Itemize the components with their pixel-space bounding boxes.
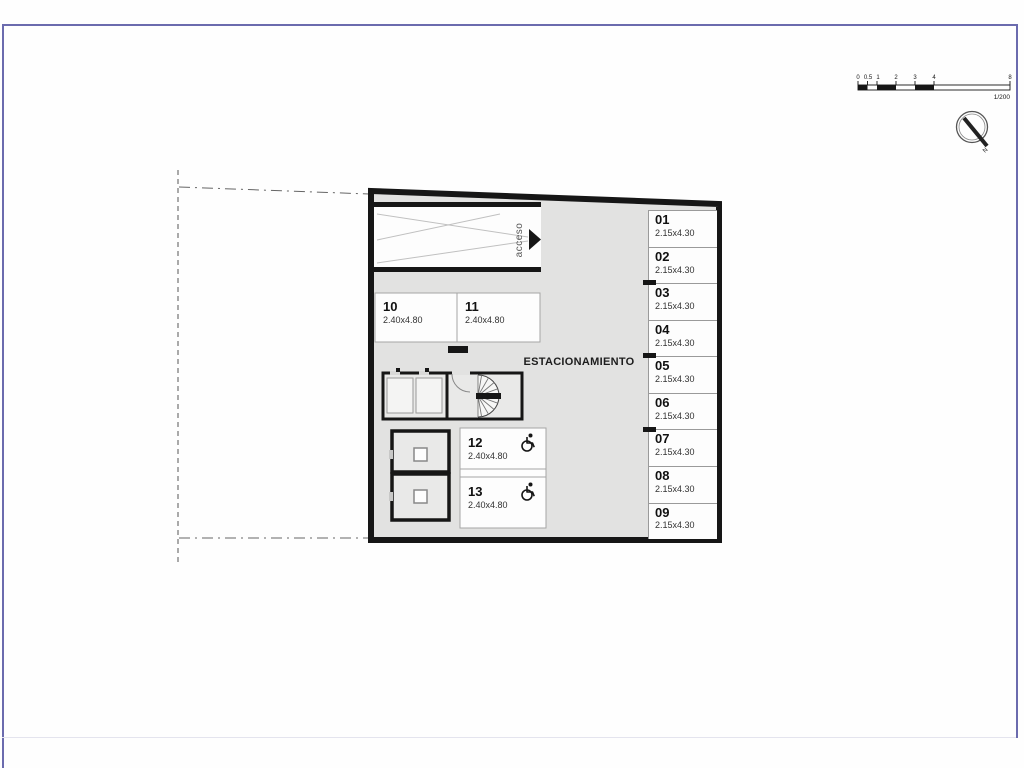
stall-04: 04 2.15x4.30: [649, 321, 717, 358]
stall-dimensions: 2.40x4.80: [383, 315, 456, 326]
stall-09: 09 2.15x4.30: [649, 504, 717, 540]
stall-number: 06: [655, 396, 717, 411]
stall-dimensions: 2.15x4.30: [655, 447, 717, 458]
scale-ratio-label: 1/200: [994, 94, 1011, 101]
stall-dimensions: 2.15x4.30: [655, 301, 717, 312]
ramp-label: acceso: [514, 218, 526, 262]
stall-dimensions: 2.40x4.80: [468, 500, 521, 511]
stall-01: 01 2.15x4.30: [649, 211, 717, 248]
column-tick: [643, 353, 656, 358]
stall-number: 13: [468, 485, 521, 500]
stall-06: 06 2.15x4.30: [649, 394, 717, 431]
stall-02: 02 2.15x4.30: [649, 248, 717, 285]
stair-core: [383, 368, 522, 419]
stall-number: 04: [655, 323, 717, 338]
property-boundary-lines: [178, 170, 369, 565]
column-tick: [643, 280, 656, 285]
north-label: N: [982, 147, 989, 154]
stall-13: 13 2.40x4.80: [461, 481, 521, 511]
stall-number: 11: [465, 300, 538, 315]
area-title: ESTACIONAMIENTO: [523, 356, 635, 368]
stall-number: 02: [655, 250, 717, 265]
stall-number: 01: [655, 213, 717, 228]
stall-08: 08 2.15x4.30: [649, 467, 717, 504]
scale-tick-label: 4: [932, 75, 936, 81]
floor-plan-page: 0 0.5 1 2 3 4 8 1/200 N 01 2.15x4.30 02 …: [0, 0, 1024, 768]
stall-dimensions: 2.15x4.30: [655, 520, 717, 531]
stall-05: 05 2.15x4.30: [649, 357, 717, 394]
stall-dimensions: 2.15x4.30: [655, 338, 717, 349]
perimeter-stall-column: 01 2.15x4.30 02 2.15x4.30 03 2.15x4.30 0…: [648, 210, 717, 539]
stall-number: 05: [655, 359, 717, 374]
stall-dimensions: 2.15x4.30: [655, 228, 717, 239]
stall-10: 10 2.40x4.80: [376, 296, 456, 326]
stall-number: 07: [655, 432, 717, 447]
scale-tick-label: 0: [856, 75, 860, 81]
stall-dimensions: 2.40x4.80: [465, 315, 538, 326]
scale-tick-label: 8: [1008, 75, 1012, 81]
plan-drawing: 0 0.5 1 2 3 4 8 1/200 N: [0, 0, 1024, 768]
storage-rooms: [389, 431, 449, 520]
column-tick: [643, 427, 656, 432]
scale-tick-label: 3: [913, 75, 917, 81]
scale-tick-label: 0.5: [864, 75, 873, 81]
stall-number: 09: [655, 506, 717, 521]
stall-number: 03: [655, 286, 717, 301]
stall-dimensions: 2.15x4.30: [655, 374, 717, 385]
stall-dimensions: 2.15x4.30: [655, 265, 717, 276]
stall-dimensions: 2.15x4.30: [655, 411, 717, 422]
scale-tick-label: 1: [876, 75, 880, 81]
stall-12: 12 2.40x4.80: [461, 432, 521, 462]
stall-dimensions: 2.40x4.80: [468, 451, 521, 462]
north-indicator: N: [957, 112, 990, 155]
stall-03: 03 2.15x4.30: [649, 284, 717, 321]
scale-tick-label: 2: [894, 75, 898, 81]
stall-dimensions: 2.15x4.30: [655, 484, 717, 495]
stall-07: 07 2.15x4.30: [649, 430, 717, 467]
structural-column: [448, 346, 468, 353]
stall-number: 08: [655, 469, 717, 484]
scale-bar: 0 0.5 1 2 3 4 8 1/200: [856, 75, 1012, 101]
stall-11: 11 2.40x4.80: [458, 296, 538, 326]
stall-number: 12: [468, 436, 521, 451]
stall-number: 10: [383, 300, 456, 315]
